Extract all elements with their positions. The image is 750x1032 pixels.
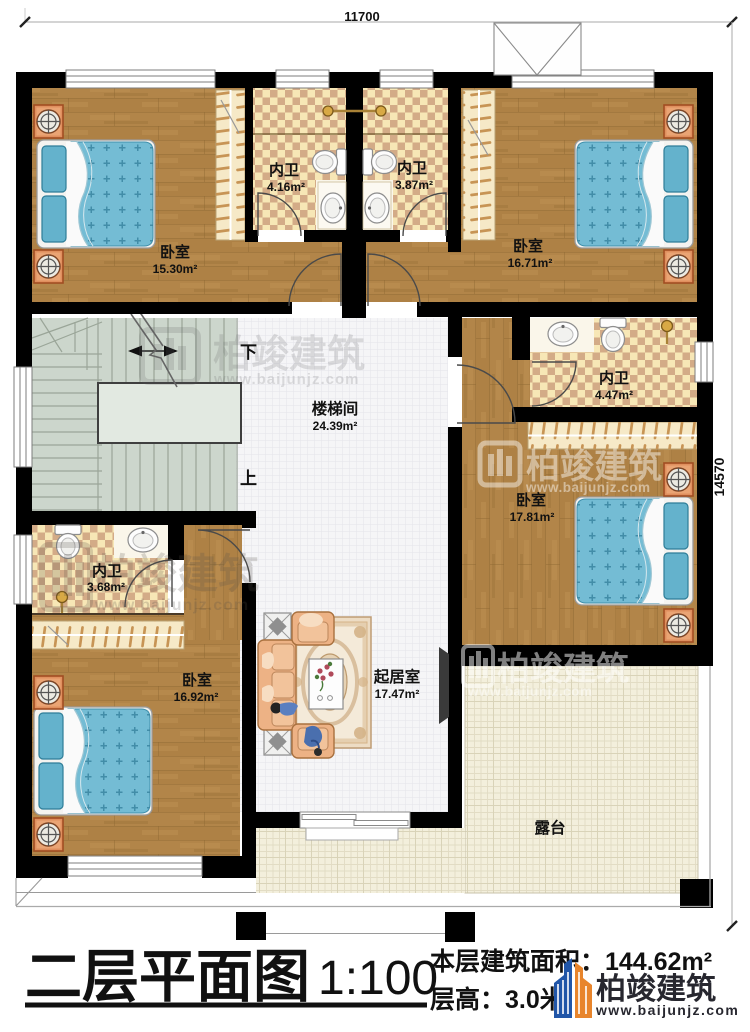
svg-text:17.81m²: 17.81m² bbox=[510, 510, 555, 524]
svg-text:4.16m²: 4.16m² bbox=[267, 180, 305, 194]
svg-text:内卫: 内卫 bbox=[397, 159, 427, 177]
svg-text:16.92m²: 16.92m² bbox=[174, 690, 219, 704]
svg-text:www.baijunjz.com: www.baijunjz.com bbox=[94, 597, 249, 614]
svg-text:层高：3.0米: 层高：3.0米 bbox=[430, 985, 566, 1014]
svg-text:柏竣建筑: 柏竣建筑 bbox=[497, 650, 629, 687]
svg-text:1:100: 1:100 bbox=[318, 952, 438, 1005]
svg-text:4.47m²: 4.47m² bbox=[595, 388, 633, 402]
svg-text:24.39m²: 24.39m² bbox=[313, 419, 358, 433]
svg-text:内卫: 内卫 bbox=[599, 369, 629, 387]
svg-text:内卫: 内卫 bbox=[92, 562, 122, 580]
svg-text:下: 下 bbox=[240, 343, 257, 362]
svg-text:柏竣建筑: 柏竣建筑 bbox=[596, 972, 716, 1006]
svg-text:www.baijunjz.com: www.baijunjz.com bbox=[595, 1002, 739, 1018]
svg-text:www.baijunjz.com: www.baijunjz.com bbox=[213, 371, 359, 388]
svg-text:卧室: 卧室 bbox=[513, 237, 543, 255]
svg-text:14570: 14570 bbox=[711, 457, 727, 496]
svg-text:卧室: 卧室 bbox=[160, 243, 190, 261]
svg-text:二层平面图: 二层平面图 bbox=[25, 945, 310, 1009]
svg-text:起居室: 起居室 bbox=[373, 667, 421, 686]
svg-text:3.87m²: 3.87m² bbox=[395, 178, 433, 192]
svg-text:楼梯间: 楼梯间 bbox=[312, 399, 359, 418]
svg-text:柏竣建筑: 柏竣建筑 bbox=[213, 334, 365, 376]
svg-text:卧室: 卧室 bbox=[516, 491, 546, 509]
svg-text:15.30m²: 15.30m² bbox=[153, 262, 198, 276]
svg-text:上: 上 bbox=[240, 469, 257, 488]
svg-text:16.71m²: 16.71m² bbox=[508, 256, 553, 270]
svg-text:露台: 露台 bbox=[534, 818, 565, 837]
svg-text:www.baijunjz.com: www.baijunjz.com bbox=[467, 684, 593, 699]
svg-text:17.47m²: 17.47m² bbox=[375, 687, 420, 701]
svg-text:3.68m²: 3.68m² bbox=[87, 580, 125, 594]
svg-text:内卫: 内卫 bbox=[269, 161, 299, 179]
svg-text:11700: 11700 bbox=[344, 9, 379, 24]
svg-text:卧室: 卧室 bbox=[182, 671, 212, 689]
